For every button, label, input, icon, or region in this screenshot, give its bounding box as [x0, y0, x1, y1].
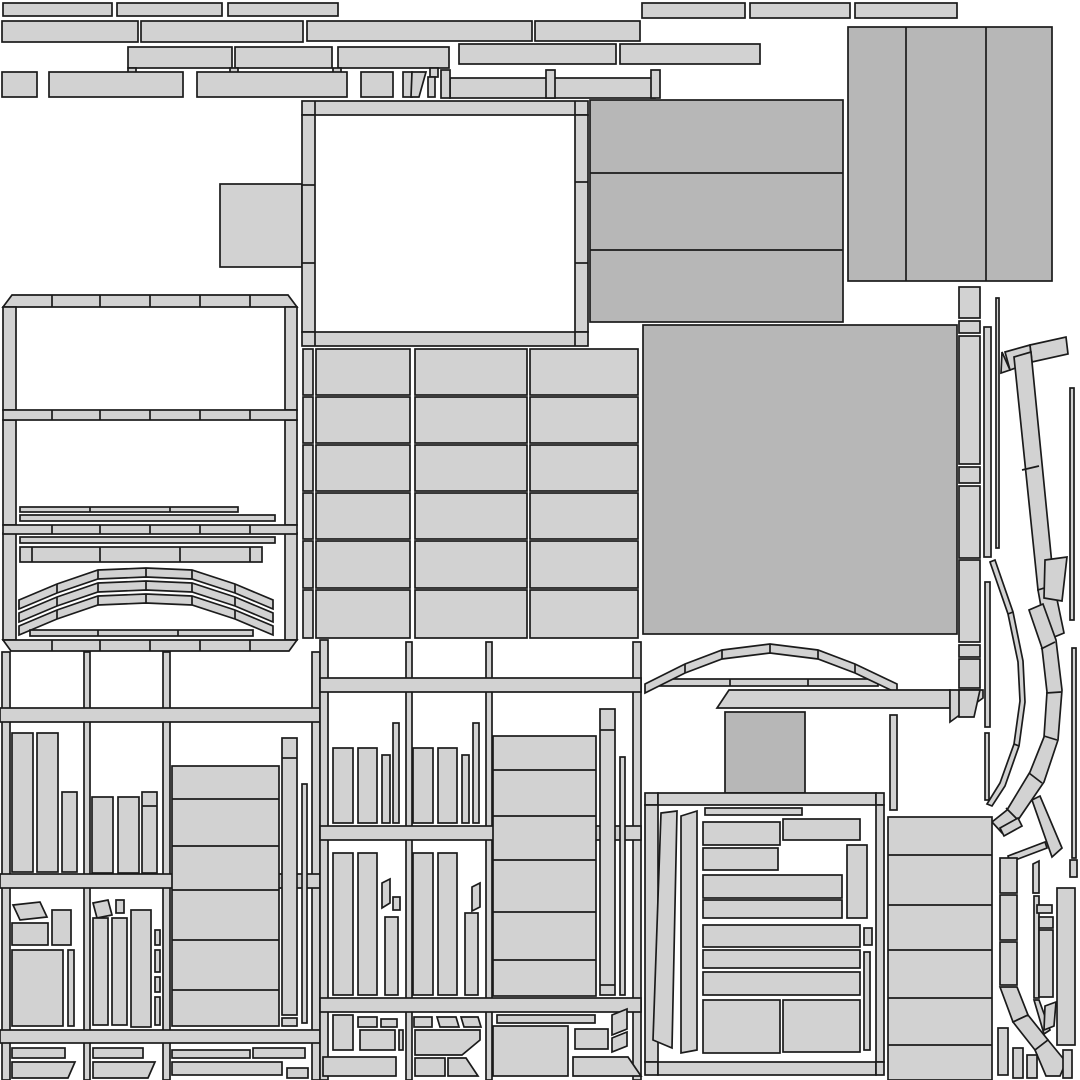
cabinet-part	[658, 1062, 876, 1075]
top-planks-part	[197, 72, 347, 97]
bookshelf-left-part	[52, 910, 71, 945]
bookshelf-left-part	[68, 950, 74, 1026]
top-planks-part	[117, 3, 222, 16]
bookshelf-left-part	[155, 950, 160, 972]
shelf-grid-part	[415, 397, 527, 443]
bookshelf-center-part	[497, 1015, 595, 1023]
right-rails-lower-part	[1000, 858, 1017, 893]
cabinet	[645, 793, 884, 1075]
right-rails-lower-part	[1027, 1055, 1037, 1078]
right-rails-lower-part	[1000, 895, 1017, 940]
shelf-grid-part	[530, 493, 638, 539]
shelf-grid-part	[530, 397, 638, 443]
bookshelf-left-part	[37, 733, 58, 872]
right-rails-lower-part	[1039, 917, 1053, 928]
bookshelf-center-part	[381, 1019, 397, 1027]
bookshelf-center-part	[465, 913, 478, 995]
shelf-grid-part	[316, 349, 410, 395]
cabinet-part	[703, 1000, 780, 1053]
right-rails-upper-part	[959, 287, 980, 318]
bookshelf-left-part	[93, 1048, 143, 1058]
top-planks-part	[535, 21, 640, 41]
bookshelf-left-part	[118, 797, 139, 873]
counter-assembly-part	[717, 690, 950, 708]
counter-assembly-part	[658, 679, 878, 686]
cabinet-part	[703, 848, 778, 870]
side-square-part	[220, 184, 302, 267]
counter-assembly	[645, 644, 983, 810]
bookshelf-center-part	[438, 853, 457, 995]
bookshelf-center-part	[415, 1058, 445, 1076]
bookshelf-center-part	[493, 1026, 568, 1076]
top-planks-part	[338, 47, 449, 68]
top-planks-part	[307, 21, 532, 41]
arched-frame-unit-part	[20, 547, 262, 562]
wall-panel-3row-part	[590, 100, 843, 322]
bookshelf-left-part	[155, 997, 160, 1025]
cabinet-part	[645, 1062, 658, 1075]
arched-frame-unit-part	[3, 420, 16, 525]
cabinet-part	[645, 793, 658, 805]
bookshelf-center-part	[399, 1030, 403, 1050]
right-rails-upper-part	[1014, 352, 1054, 590]
bookshelf-left-part	[12, 923, 48, 945]
right-rails-upper-part	[985, 582, 990, 727]
bookshelf-center-part	[323, 1057, 396, 1076]
bookshelf-center-part	[320, 678, 641, 692]
top-planks-part	[49, 72, 183, 97]
cabinet-part	[783, 1000, 860, 1052]
arched-frame-unit-part	[285, 533, 297, 640]
bookshelf-center-part	[600, 709, 615, 995]
right-rails-upper-part	[959, 690, 980, 717]
bookshelf-center-part	[360, 1030, 395, 1050]
top-planks-part	[3, 3, 112, 16]
shelf-grid-part	[316, 445, 410, 491]
right-rails-lower-part	[1037, 905, 1052, 913]
arched-frame-unit-part	[20, 537, 275, 543]
bookshelf-left-part	[142, 792, 157, 873]
bookshelf-left-part	[172, 766, 279, 1026]
top-planks-part	[2, 21, 138, 42]
bookshelf-center-part	[415, 1030, 480, 1055]
bookshelf-center-part	[448, 1058, 478, 1076]
top-planks-part	[361, 72, 393, 97]
side-square	[220, 184, 302, 267]
cabinet-part	[864, 928, 872, 945]
top-planks	[2, 3, 957, 98]
cabinet-part	[783, 819, 860, 840]
top-planks-part	[411, 72, 426, 97]
shelf-grid-part	[316, 590, 410, 638]
bookshelf-center-part	[333, 1015, 353, 1050]
bookshelf-center-part	[382, 755, 390, 823]
bookshelf-center-part	[486, 642, 492, 1080]
bookshelf-center-part	[438, 748, 457, 823]
top-planks-part	[750, 3, 850, 18]
top-planks-part	[2, 72, 37, 97]
shelf-grid-part	[415, 349, 527, 395]
bookshelf-center-part	[612, 1009, 627, 1035]
bookshelf-left-part	[172, 1062, 282, 1075]
bookshelf-left-part	[116, 900, 124, 913]
bookshelf-center-part	[620, 757, 625, 995]
right-rails-upper-part	[959, 659, 980, 688]
bookshelf-center-part	[320, 998, 641, 1012]
right-rails-upper-part	[959, 486, 980, 558]
cabinet-part	[876, 805, 884, 1062]
cabinet-part	[658, 793, 876, 805]
bookshelf-left-part	[0, 1030, 320, 1043]
bookshelf-left-part	[282, 738, 297, 1015]
shelf-grid-part	[303, 541, 313, 588]
bookshelf-left-part	[93, 918, 108, 1025]
shelf-grid-part	[316, 397, 410, 443]
bookshelf-left-part	[12, 733, 33, 872]
bookshelf-left-part	[155, 977, 160, 992]
cabinet-part	[876, 1062, 884, 1075]
arched-frame-unit-part	[30, 630, 253, 636]
right-rails-upper	[959, 287, 1076, 862]
cabinet-part	[864, 952, 870, 1050]
bookshelf-center-part	[414, 1017, 432, 1027]
shelf-grid-part	[530, 445, 638, 491]
right-rails-upper-part	[1046, 692, 1061, 693]
right-rails-upper-part	[1072, 648, 1076, 858]
bookshelf-left-part	[302, 784, 307, 1023]
bookshelf-left-part	[131, 910, 151, 1027]
bookshelf-center-part	[413, 853, 433, 995]
shelf-grid-part	[530, 590, 638, 638]
right-rails-upper-part	[959, 560, 980, 642]
shelf-grid-part	[303, 349, 313, 395]
right-rails-lower-part	[1033, 861, 1039, 893]
right-rails-lower-part	[998, 1028, 1008, 1075]
shelf-grid-part	[415, 590, 527, 638]
bookshelf-center	[320, 640, 641, 1080]
top-planks-part	[141, 21, 303, 42]
arched-frame-unit-part	[3, 533, 16, 640]
large-panel	[643, 325, 957, 634]
bookshelf-left-part	[253, 1048, 305, 1058]
cabinet-part	[703, 875, 842, 898]
counter-assembly-part	[890, 715, 897, 810]
drawer-stack	[888, 817, 992, 1080]
bookshelf-left-part	[287, 1068, 308, 1078]
window-frame	[302, 101, 588, 346]
cabinet-part	[876, 793, 884, 805]
shelf-grid-part	[530, 349, 638, 395]
bookshelf-center-part	[462, 755, 469, 823]
bookshelf-center-part	[393, 897, 400, 910]
large-panel-part	[643, 325, 957, 634]
shelf-grid	[303, 349, 638, 638]
window-frame-part	[575, 115, 588, 332]
bookshelf-center-part	[358, 748, 377, 823]
arched-frame-unit-part	[285, 420, 297, 525]
bookshelf-left-part	[93, 1062, 155, 1078]
bookshelf-center-part	[437, 1017, 459, 1027]
shelf-grid-part	[316, 493, 410, 539]
bookshelf-center-part	[413, 748, 433, 823]
right-rails-lower-part	[1057, 888, 1075, 1045]
cabinet-part	[847, 845, 867, 918]
bookshelf-center-part	[358, 1017, 377, 1027]
top-planks-part	[235, 47, 332, 68]
bookshelf-center-part	[573, 1057, 641, 1076]
right-rails-upper-part	[1044, 557, 1067, 601]
right-rails-lower-part	[1039, 930, 1053, 997]
bookshelf-left-part	[112, 918, 127, 1025]
bookshelf-left-part	[155, 930, 160, 945]
right-rails-upper-part	[959, 336, 980, 464]
window-frame-part	[302, 101, 588, 115]
top-planks-part	[855, 3, 957, 18]
right-rails-upper-part	[985, 733, 989, 800]
top-planks-part	[128, 47, 232, 68]
bookshelf-center-part	[473, 723, 479, 823]
bookshelf-left-part	[92, 797, 113, 873]
window-frame-part	[302, 115, 315, 332]
right-rails-upper-part	[959, 645, 980, 657]
bookshelf-center-part	[472, 883, 480, 911]
shelf-grid-part	[303, 397, 313, 443]
bookshelf-left-part	[62, 792, 77, 872]
right-rails-upper-part	[1070, 388, 1074, 620]
bookshelf-center-part	[493, 736, 596, 996]
top-planks-part	[228, 3, 338, 16]
right-rails-lower-part	[1044, 1002, 1056, 1030]
bookshelf-center-part	[393, 723, 399, 823]
right-rails-upper-part	[959, 467, 980, 483]
right-rails-upper-part	[959, 321, 980, 333]
shelf-grid-part	[415, 541, 527, 588]
bookshelf-left-part	[282, 1018, 297, 1026]
top-planks-part	[620, 44, 760, 64]
counter-assembly-part	[725, 712, 805, 793]
cabinet-part	[703, 822, 780, 845]
arched-frame-unit-part	[20, 515, 275, 521]
bookshelf-left-part	[0, 708, 320, 722]
bookshelf-center-part	[358, 853, 377, 995]
arched-frame-unit-part	[285, 307, 297, 410]
arched-frame-unit	[3, 295, 297, 651]
shelf-grid-part	[303, 445, 313, 491]
top-planks-part	[430, 68, 438, 77]
top-planks-part	[441, 70, 450, 98]
bookshelf-center-part	[633, 642, 641, 1080]
uv-atlas-canvas	[0, 0, 1080, 1080]
cabinet-part	[703, 950, 860, 968]
top-planks-part	[428, 77, 435, 97]
top-planks-part	[642, 3, 745, 18]
drawer-stack-part	[888, 817, 992, 1080]
right-rails-lower-part	[1070, 860, 1077, 877]
bookshelf-left-part	[13, 902, 47, 920]
bookshelf-left-part	[172, 1050, 250, 1058]
right-rails-upper-part	[984, 327, 991, 557]
bookshelf-left-part	[12, 1062, 75, 1078]
cabinet-part	[703, 972, 860, 995]
wall-panel-3row	[590, 100, 843, 322]
arched-frame-unit-part	[3, 307, 16, 410]
bookshelf-center-part	[320, 640, 328, 1080]
uv-atlas-sheet	[0, 0, 1080, 1080]
right-rails-upper-part	[996, 298, 999, 548]
right-rails-lower	[998, 858, 1077, 1078]
right-rails-lower-part	[1063, 1050, 1072, 1078]
right-rails-lower-part	[1013, 1048, 1023, 1078]
right-rails-lower-part	[1000, 942, 1017, 985]
shelf-grid-part	[415, 493, 527, 539]
bookshelf-center-part	[333, 853, 353, 995]
bookshelf-center-part	[382, 879, 390, 908]
bookshelf-center-part	[385, 917, 398, 995]
shelf-grid-part	[303, 590, 313, 638]
wall-panel-3col-part	[848, 27, 1052, 281]
bookshelf-left-part	[12, 950, 63, 1026]
top-planks-part	[651, 70, 660, 98]
bookshelf-center-part	[461, 1017, 481, 1027]
bookshelf-center-part	[575, 1029, 608, 1049]
bookshelf-center-part	[333, 748, 353, 823]
shelf-grid-part	[530, 541, 638, 588]
bookshelf-left-part	[93, 900, 112, 918]
top-planks-part	[459, 44, 616, 64]
shelf-grid-part	[316, 541, 410, 588]
bookshelf-left	[0, 652, 320, 1080]
wall-panel-3col	[848, 27, 1052, 281]
window-frame-part	[302, 332, 588, 346]
cabinet-part	[703, 900, 842, 918]
right-rails-upper-part	[992, 604, 1062, 833]
shelf-grid-part	[303, 493, 313, 539]
cabinet-part	[705, 808, 802, 815]
cabinet-part	[703, 925, 860, 947]
cabinet-part	[681, 811, 697, 1053]
bookshelf-center-part	[406, 642, 412, 1080]
shelf-grid-part	[415, 445, 527, 491]
bookshelf-left-part	[12, 1048, 65, 1058]
arched-frame-unit-part	[20, 507, 238, 512]
top-planks-part	[546, 70, 555, 98]
right-rails-upper-part	[987, 560, 1025, 806]
right-rails-upper-part	[1030, 337, 1068, 362]
